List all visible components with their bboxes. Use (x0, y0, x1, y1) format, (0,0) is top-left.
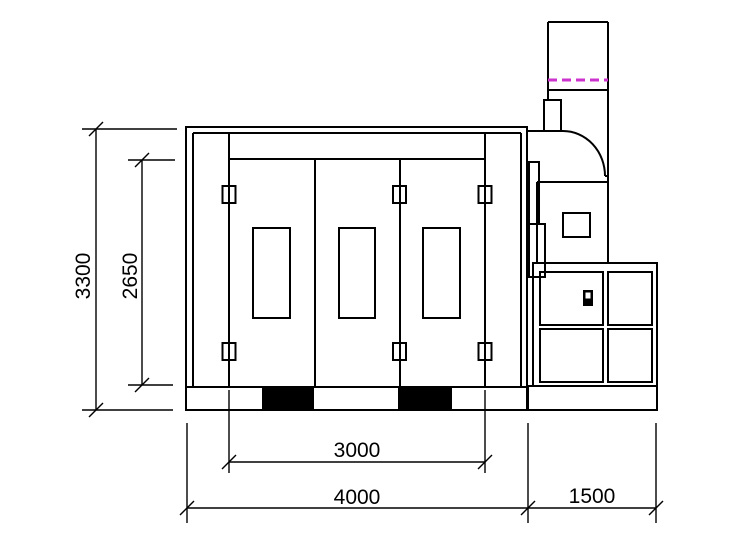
base-block-2 (399, 388, 451, 408)
door-window-3 (423, 228, 460, 318)
cabinet-panel-top-left (540, 272, 603, 325)
dim-4000-label: 4000 (334, 486, 381, 509)
dim-3300-label: 3300 (72, 253, 95, 300)
drawing-canvas: 3300 2650 3000 4000 (0, 0, 750, 549)
door-window-1 (253, 228, 290, 318)
exhaust-unit (527, 22, 608, 277)
cabinet-handle-window (586, 293, 591, 299)
dim-3000-label: 3000 (334, 439, 381, 462)
cabinet-base-strip (528, 386, 657, 410)
dim-2650-label: 2650 (119, 253, 142, 300)
filter-cabinet (528, 263, 657, 410)
booth-outer-wall (186, 127, 527, 410)
dimension-machine-section-width (528, 423, 663, 523)
dim-1500-label: 1500 (569, 485, 616, 508)
cabinet-panel-bottom-left (540, 329, 603, 382)
door-window-2 (339, 228, 375, 318)
booth-body (186, 127, 527, 410)
spray-booth-elevation-drawing: 3300 2650 3000 4000 (0, 0, 750, 549)
base-block-1 (263, 388, 313, 408)
stack-connector-box (544, 100, 561, 131)
cabinet-panel-top-right (608, 272, 652, 325)
fan-housing-window (563, 213, 590, 237)
cabinet-panel-bottom-right (608, 329, 652, 382)
elbow-arc (563, 131, 605, 176)
